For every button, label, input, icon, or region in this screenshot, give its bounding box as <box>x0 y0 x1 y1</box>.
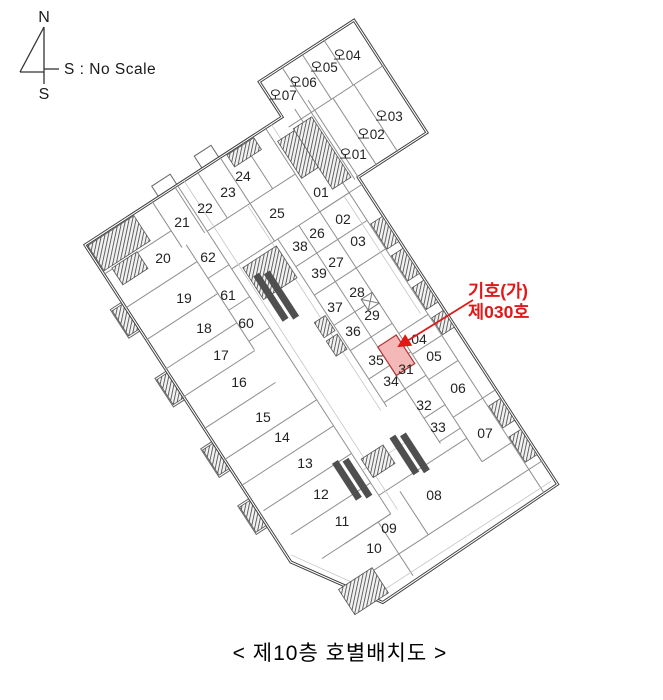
room-label-오03: 오03 <box>375 109 402 124</box>
room-label-20: 20 <box>155 250 171 266</box>
annotation-line1: 기호(가) <box>468 281 528 301</box>
compass-south-label: S <box>39 86 50 103</box>
room-label-22: 22 <box>197 200 213 216</box>
room-label-10: 10 <box>366 540 382 556</box>
room-label-07: 07 <box>477 425 493 441</box>
room-label-오07: 오07 <box>269 88 296 103</box>
room-label-오01: 오01 <box>339 147 366 162</box>
building-plan <box>50 20 628 640</box>
room-label-08: 08 <box>426 487 442 503</box>
room-label-24: 24 <box>235 168 251 184</box>
room-label-21: 21 <box>174 214 190 230</box>
room-label-02: 02 <box>335 211 351 227</box>
room-label-26: 26 <box>309 225 325 241</box>
room-label-62: 62 <box>200 249 216 265</box>
compass-north-label: N <box>38 9 50 26</box>
floor-plan-canvas: 오04오05오06오07오03오02오010102030405060708091… <box>0 0 663 700</box>
scale-note: S : No Scale <box>64 61 156 78</box>
room-label-12: 12 <box>313 486 329 502</box>
drawing-caption: < 제10층 호별배치도 > <box>233 642 448 665</box>
room-label-오02: 오02 <box>357 127 384 142</box>
room-label-14: 14 <box>274 429 290 445</box>
room-label-28: 28 <box>349 284 365 300</box>
room-label-23: 23 <box>220 184 236 200</box>
room-label-25: 25 <box>269 205 285 221</box>
room-label-17: 17 <box>213 347 229 363</box>
room-label-32: 32 <box>416 397 432 413</box>
room-label-오05: 오05 <box>310 60 337 75</box>
room-label-16: 16 <box>231 374 247 390</box>
room-label-38: 38 <box>292 238 308 254</box>
room-label-06: 06 <box>450 380 466 396</box>
room-label-19: 19 <box>176 290 192 306</box>
room-label-60: 60 <box>238 315 254 331</box>
room-label-15: 15 <box>255 409 271 425</box>
compass-icon <box>20 27 59 84</box>
room-label-36: 36 <box>345 323 361 339</box>
room-label-11: 11 <box>335 513 350 529</box>
room-label-09: 09 <box>381 520 397 536</box>
room-label-34: 34 <box>383 373 399 389</box>
room-label-61: 61 <box>220 287 236 303</box>
room-label-31: 31 <box>398 361 414 377</box>
room-label-27: 27 <box>328 254 344 270</box>
room-label-03: 03 <box>350 233 366 249</box>
room-label-35: 35 <box>368 352 384 368</box>
room-label-33: 33 <box>430 419 446 435</box>
floor-plan-page: 오04오05오06오07오03오02오010102030405060708091… <box>0 0 663 700</box>
room-label-37: 37 <box>327 299 343 315</box>
room-label-18: 18 <box>196 320 212 336</box>
room-label-13: 13 <box>297 455 313 471</box>
room-label-29: 29 <box>364 307 380 323</box>
room-label-01: 01 <box>313 184 329 200</box>
room-label-05: 05 <box>426 348 442 364</box>
annotation-line2: 제030호 <box>468 302 529 322</box>
room-label-39: 39 <box>311 265 327 281</box>
